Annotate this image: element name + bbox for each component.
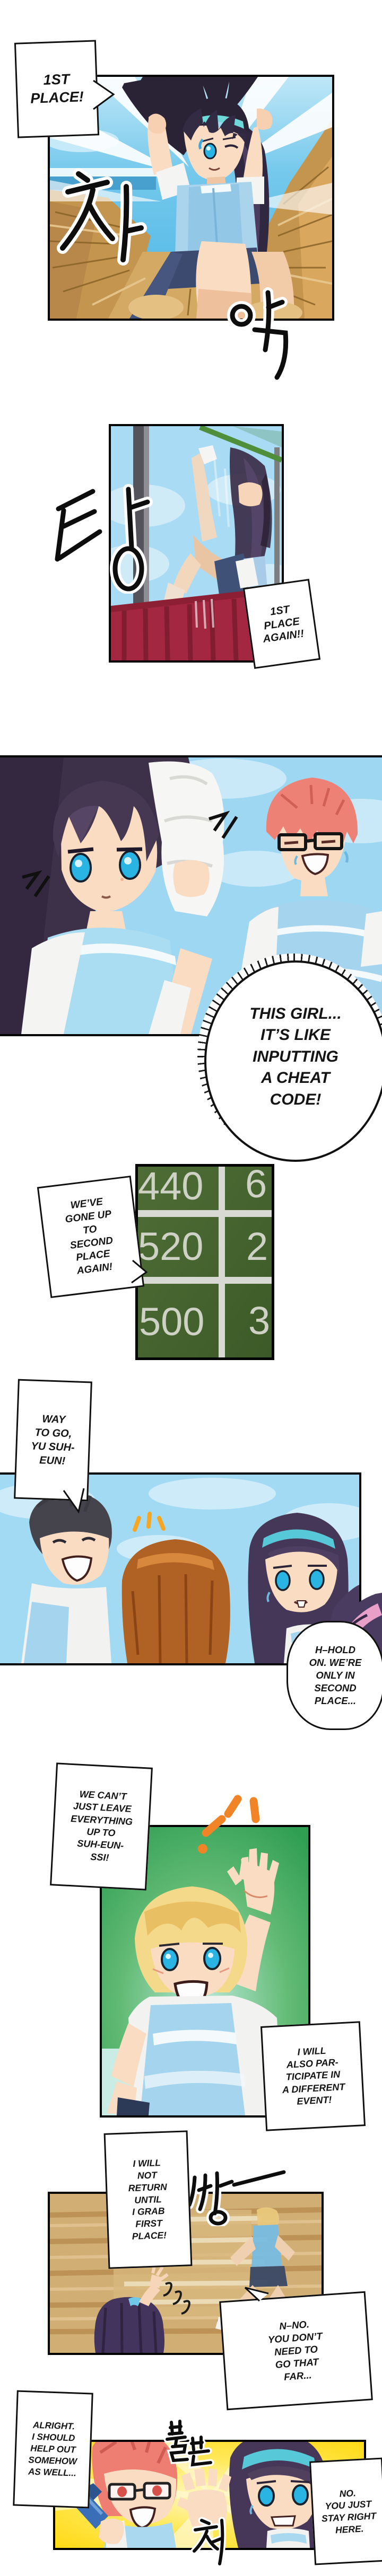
svg-text:440: 440: [138, 1167, 203, 1208]
svg-text:6: 6: [245, 1167, 267, 1206]
svg-text:3: 3: [248, 1299, 270, 1343]
svg-text:2: 2: [246, 1224, 268, 1268]
svg-text:520: 520: [138, 1224, 203, 1268]
svg-text:500: 500: [139, 1300, 204, 1344]
